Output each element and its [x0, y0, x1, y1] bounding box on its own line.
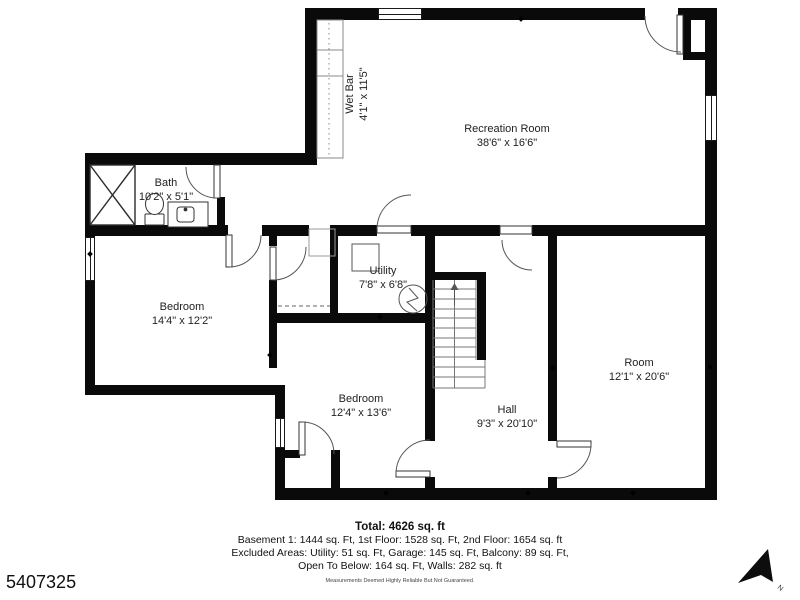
room-label-bath: Bath 10'2" x 5'1"	[116, 176, 216, 204]
door-leaf	[270, 247, 276, 280]
room-label-hall: Hall 9'3" x 20'10"	[437, 403, 577, 431]
room-dimensions: 10'2" x 5'1"	[116, 190, 216, 204]
room-dimensions: 12'4" x 13'6"	[291, 406, 431, 420]
total-area-text: Total: 4626 sq. ft	[0, 521, 800, 534]
area-summary: Total: 4626 sq. ft Basement 1: 1444 sq. …	[0, 521, 800, 584]
room-label-utility: Utility 7'8" x 6'8"	[333, 264, 433, 292]
floor-areas-text: Basement 1: 1444 sq. Ft, 1st Floor: 1528…	[0, 534, 800, 547]
closet-shelf	[309, 229, 335, 256]
door-leaf	[500, 226, 532, 234]
room-name: Utility	[333, 264, 433, 278]
room-name: Wet Bar	[343, 38, 357, 150]
room-dimensions: 12'1" x 20'6"	[569, 370, 709, 384]
room-label-wet-bar: Wet Bar 4'1" x 11'5"	[343, 38, 371, 150]
room-name: Bedroom	[291, 392, 431, 406]
north-arrow-icon: N	[728, 543, 798, 595]
north-arrow-shape	[738, 549, 773, 583]
room-name: Recreation Room	[407, 122, 607, 136]
room-label-recreation: Recreation Room 38'6" x 16'6"	[407, 122, 607, 150]
north-letter: N	[776, 584, 784, 593]
room-label-bedroom-left: Bedroom 14'4" x 12'2"	[112, 300, 252, 328]
room-name: Bath	[116, 176, 216, 190]
room-label-bedroom-bottom: Bedroom 12'4" x 13'6"	[291, 392, 431, 420]
room-dimensions: 14'4" x 12'2"	[112, 314, 252, 328]
room-dimensions: 38'6" x 16'6"	[407, 136, 607, 150]
door-arc	[502, 240, 532, 270]
stairs	[433, 280, 485, 388]
door-arc	[396, 440, 430, 474]
door-leaf	[377, 226, 411, 233]
door-arc	[557, 444, 591, 478]
excluded-areas-text2: Open To Below: 164 sq. Ft, Walls: 282 sq…	[0, 560, 800, 573]
door-leaf	[299, 422, 305, 455]
door-leaf	[557, 441, 591, 447]
excluded-areas-text: Excluded Areas: Utility: 51 sq. Ft, Gara…	[0, 547, 800, 560]
door-arc	[229, 235, 261, 267]
door-arc	[273, 247, 306, 280]
door-leaf	[677, 15, 683, 54]
door-arc	[645, 16, 681, 52]
room-name: Bedroom	[112, 300, 252, 314]
room-dimensions: 7'8" x 6'8"	[333, 278, 433, 292]
room-name: Hall	[437, 403, 577, 417]
door-arc	[377, 195, 411, 229]
stairs-up-arrow	[451, 283, 459, 290]
floor-plan: Wet Bar 4'1" x 11'5" Recreation Room 38'…	[0, 0, 800, 600]
room-dimensions: 9'3" x 20'10"	[437, 417, 577, 431]
room-label-room: Room 12'1" x 20'6"	[569, 356, 709, 384]
room-name: Room	[569, 356, 709, 370]
disclaimer-text: Measurements Deemed Highly Reliable But …	[0, 578, 800, 584]
sink-vanity	[168, 202, 208, 227]
door-symbols	[186, 15, 683, 478]
room-dimensions: 4'1" x 11'5"	[357, 38, 371, 150]
door-leaf	[226, 235, 232, 267]
wet-bar-counter	[317, 20, 343, 158]
door-leaf	[396, 471, 430, 477]
plan-number: 5407325	[6, 572, 76, 593]
door-arc	[302, 422, 334, 454]
